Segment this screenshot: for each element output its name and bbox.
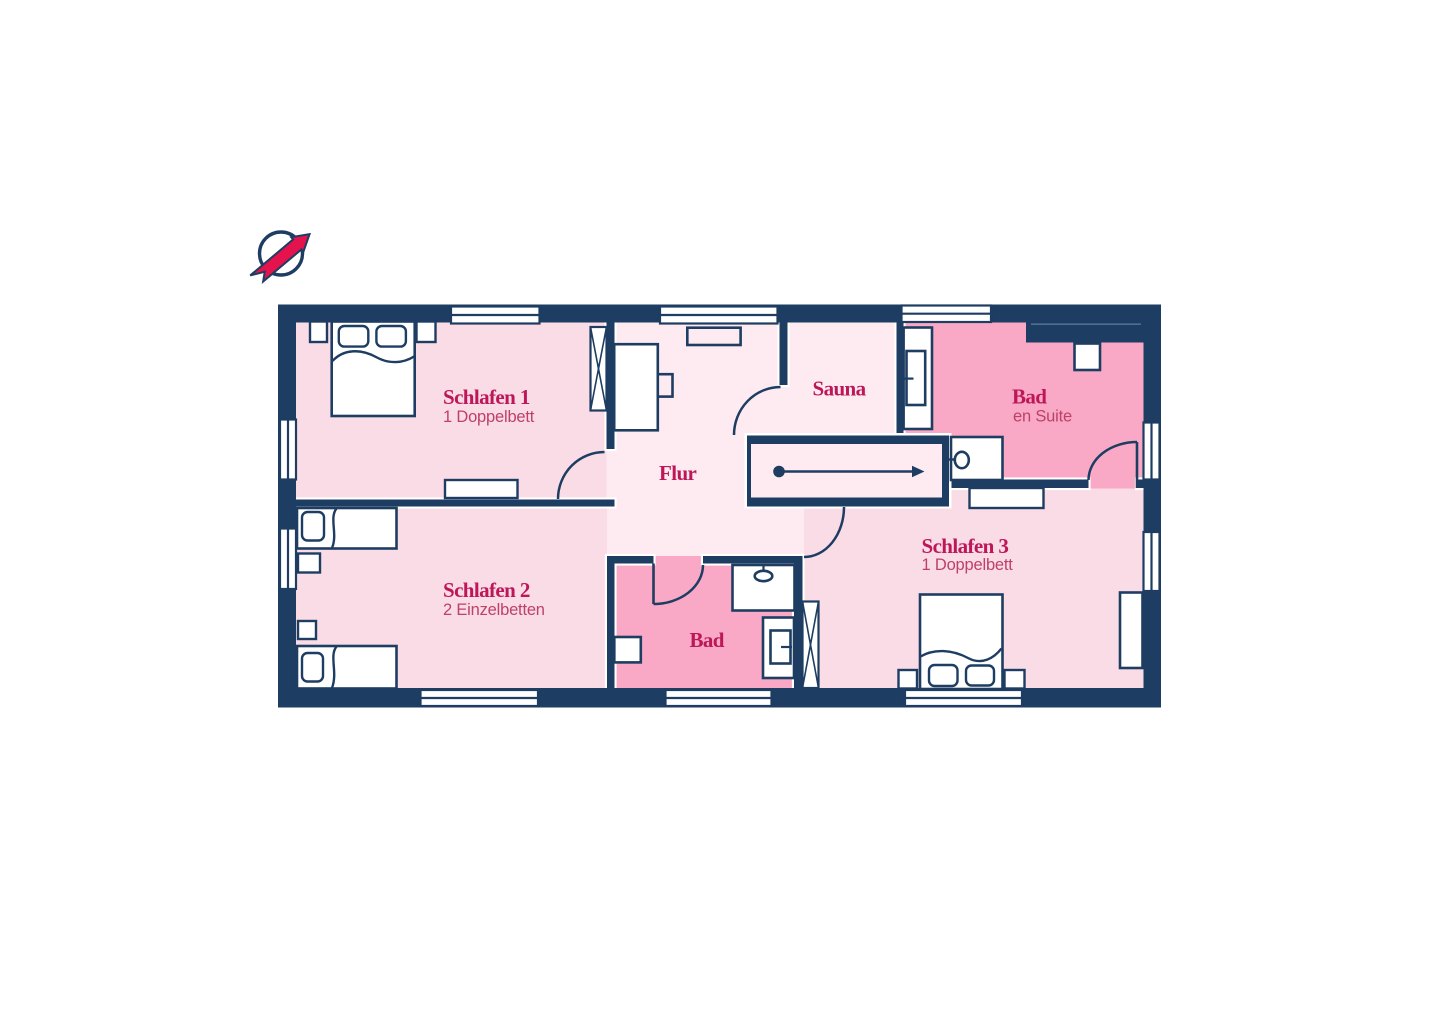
svg-text:Schlafen 2: Schlafen 2 — [443, 578, 530, 602]
svg-text:1 Doppelbett: 1 Doppelbett — [443, 408, 535, 426]
svg-text:Schlafen 3: Schlafen 3 — [922, 534, 1009, 558]
svg-text:Sauna: Sauna — [813, 377, 867, 401]
svg-text:Bad: Bad — [690, 628, 725, 652]
svg-text:1 Doppelbett: 1 Doppelbett — [922, 556, 1014, 574]
svg-text:2 Einzelbetten: 2 Einzelbetten — [443, 601, 545, 619]
svg-text:Flur: Flur — [659, 461, 697, 485]
svg-text:Schlafen 1: Schlafen 1 — [443, 385, 530, 409]
svg-text:en Suite: en Suite — [1013, 408, 1072, 426]
svg-text:Bad: Bad — [1012, 385, 1047, 409]
